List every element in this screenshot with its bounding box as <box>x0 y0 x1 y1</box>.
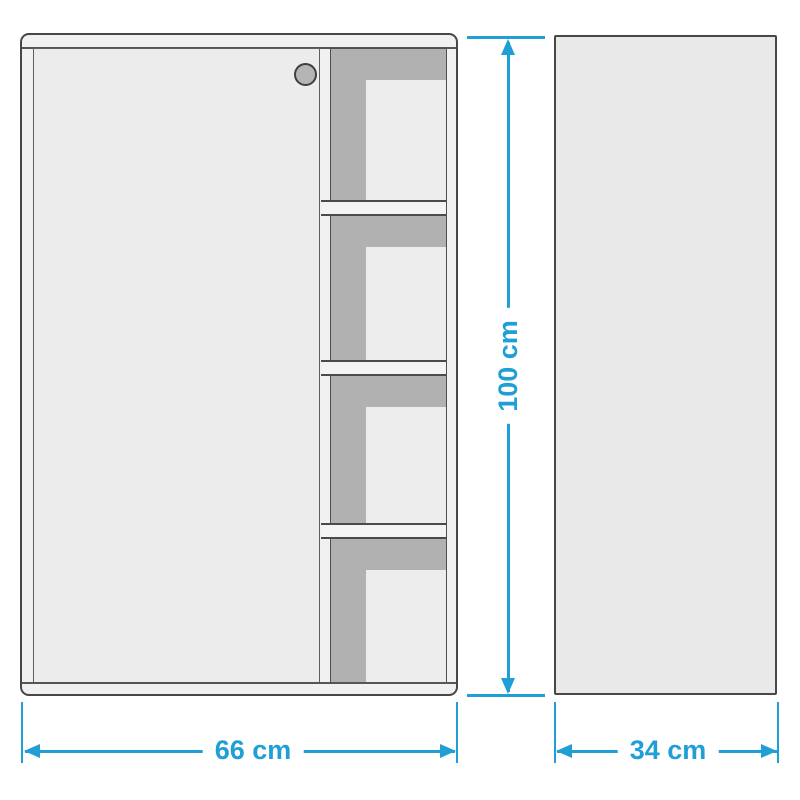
shelf-compartment-interior <box>366 247 446 360</box>
cabinet-bottom-rail-edge <box>22 682 456 684</box>
depth-dim-arrow-right-icon <box>761 744 777 758</box>
width-dim-arrow-left-icon <box>24 744 40 758</box>
shelf-board <box>321 200 446 216</box>
shelf-compartment <box>331 376 446 523</box>
depth-dim-right-ext <box>777 702 779 763</box>
shelf-board <box>321 523 446 539</box>
height-dim-label: 100 cm <box>494 308 524 424</box>
width-dim-label: 66 cm <box>203 736 304 766</box>
shelf-column <box>330 48 447 683</box>
height-dim-arrow-up-icon <box>501 39 515 55</box>
dimension-diagram: 100 cm 66 cm 34 cm <box>0 0 800 800</box>
height-dim-bottom-tick <box>467 694 545 697</box>
shelf-compartment <box>331 539 446 682</box>
cabinet-front-view <box>20 33 458 696</box>
shelf-compartment-interior <box>366 80 446 200</box>
door-handle-icon <box>294 63 317 86</box>
width-dim-left-ext <box>21 702 23 763</box>
depth-dim-label: 34 cm <box>618 736 719 766</box>
height-dim-arrow-down-icon <box>501 678 515 694</box>
shelf-compartment-interior <box>366 570 446 682</box>
shelf-board <box>321 360 446 376</box>
cabinet-door <box>33 48 320 683</box>
cabinet-side-view <box>554 35 777 695</box>
shelf-compartment <box>331 49 446 200</box>
width-dim-arrow-right-icon <box>440 744 456 758</box>
depth-dim-arrow-left-icon <box>556 744 572 758</box>
width-dim-right-ext <box>456 702 458 763</box>
shelf-compartment <box>331 216 446 360</box>
shelf-compartment-interior <box>366 407 446 523</box>
